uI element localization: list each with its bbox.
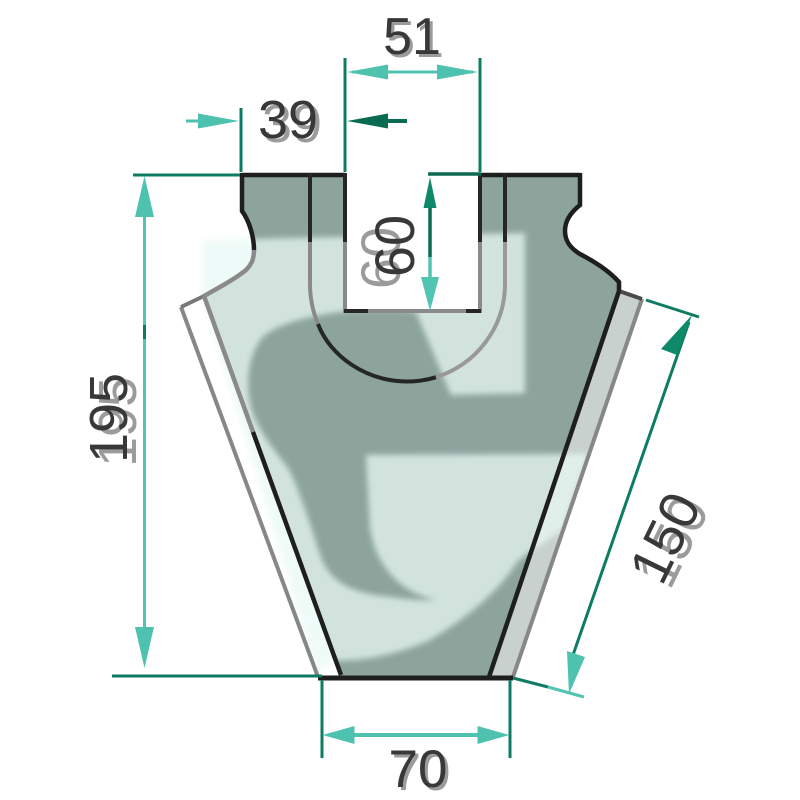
svg-text:60: 60: [363, 215, 426, 277]
svg-text:51: 51: [383, 8, 441, 66]
svg-text:70: 70: [389, 740, 448, 799]
svg-text:195: 195: [79, 373, 139, 463]
svg-text:39: 39: [258, 90, 318, 150]
